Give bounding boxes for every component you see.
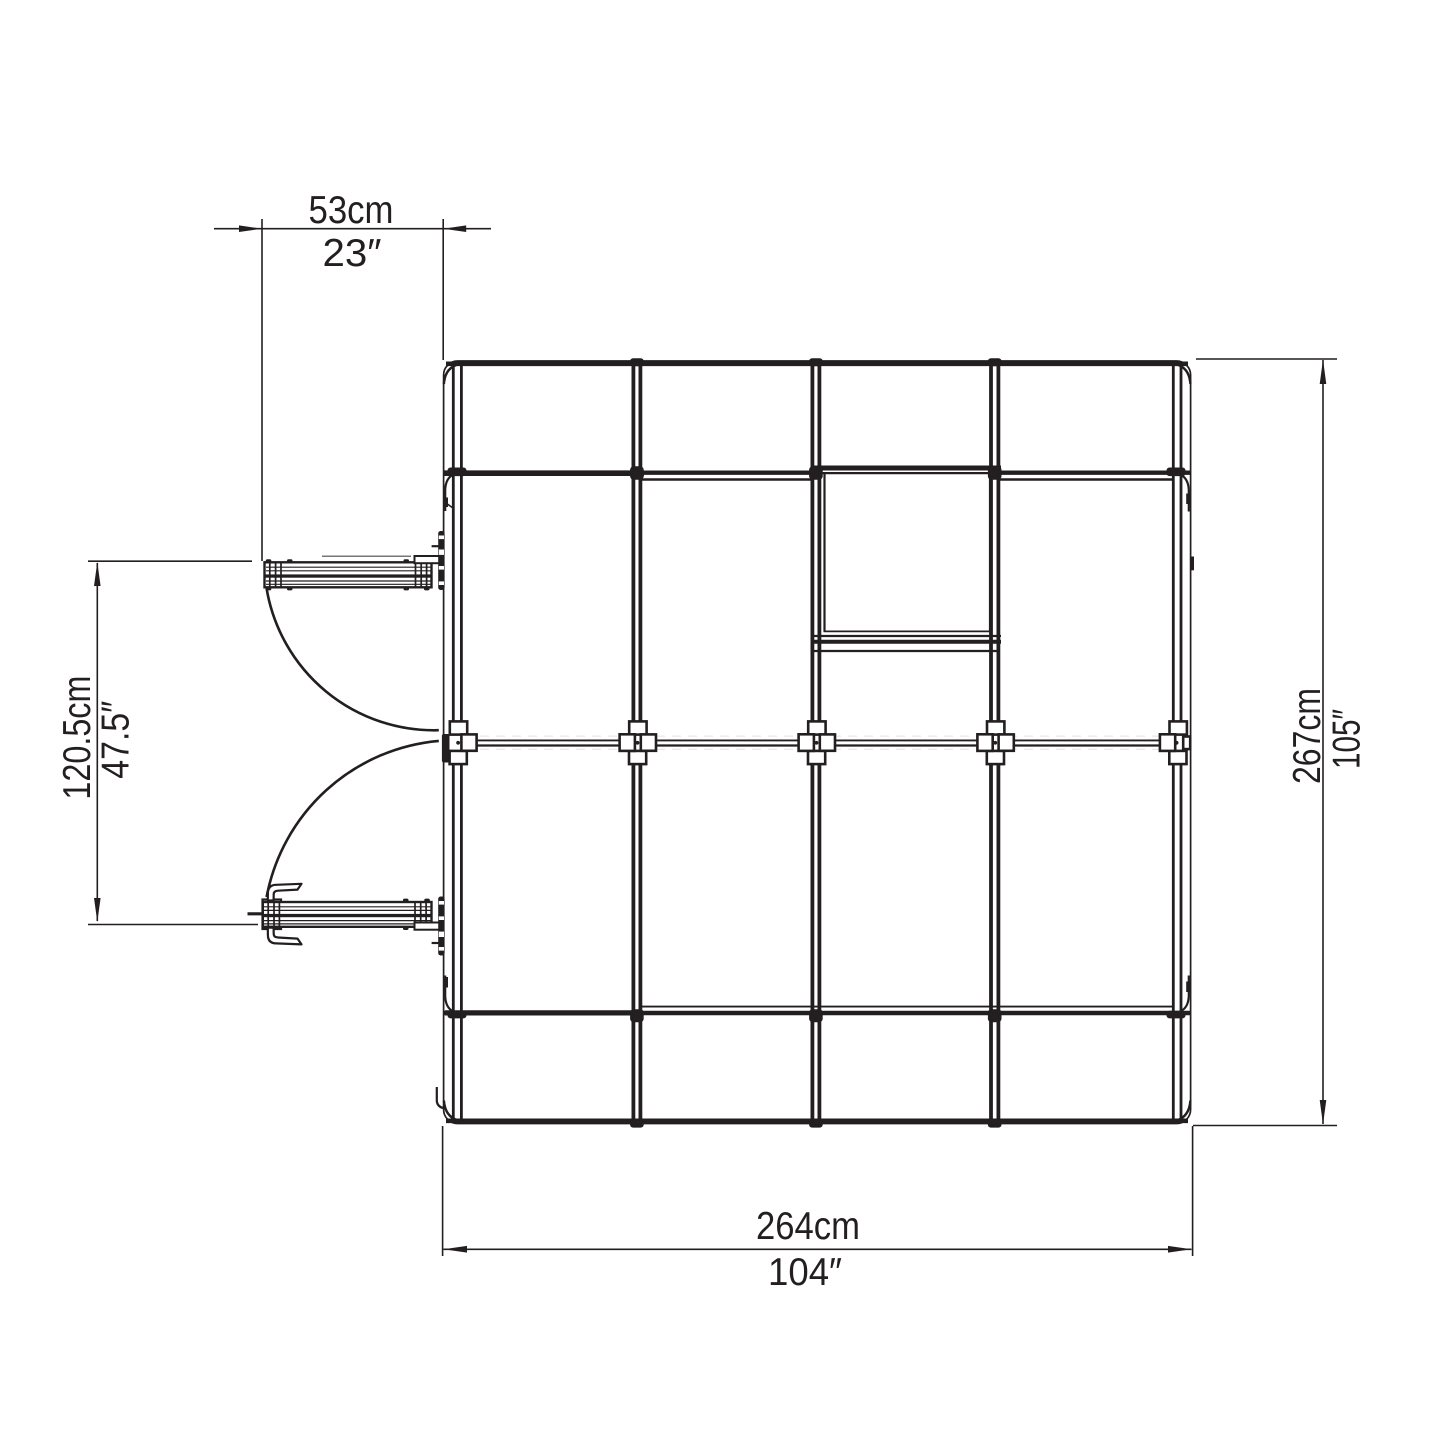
svg-text:267cm: 267cm bbox=[1286, 688, 1329, 784]
svg-text:53cm: 53cm bbox=[309, 189, 394, 232]
svg-text:264cm: 264cm bbox=[756, 1205, 860, 1248]
svg-text:23″: 23″ bbox=[323, 232, 382, 275]
svg-text:105″: 105″ bbox=[1326, 709, 1369, 769]
svg-text:120.5cm: 120.5cm bbox=[56, 676, 99, 800]
svg-text:47.5″: 47.5″ bbox=[95, 701, 138, 779]
svg-text:104″: 104″ bbox=[768, 1251, 842, 1294]
